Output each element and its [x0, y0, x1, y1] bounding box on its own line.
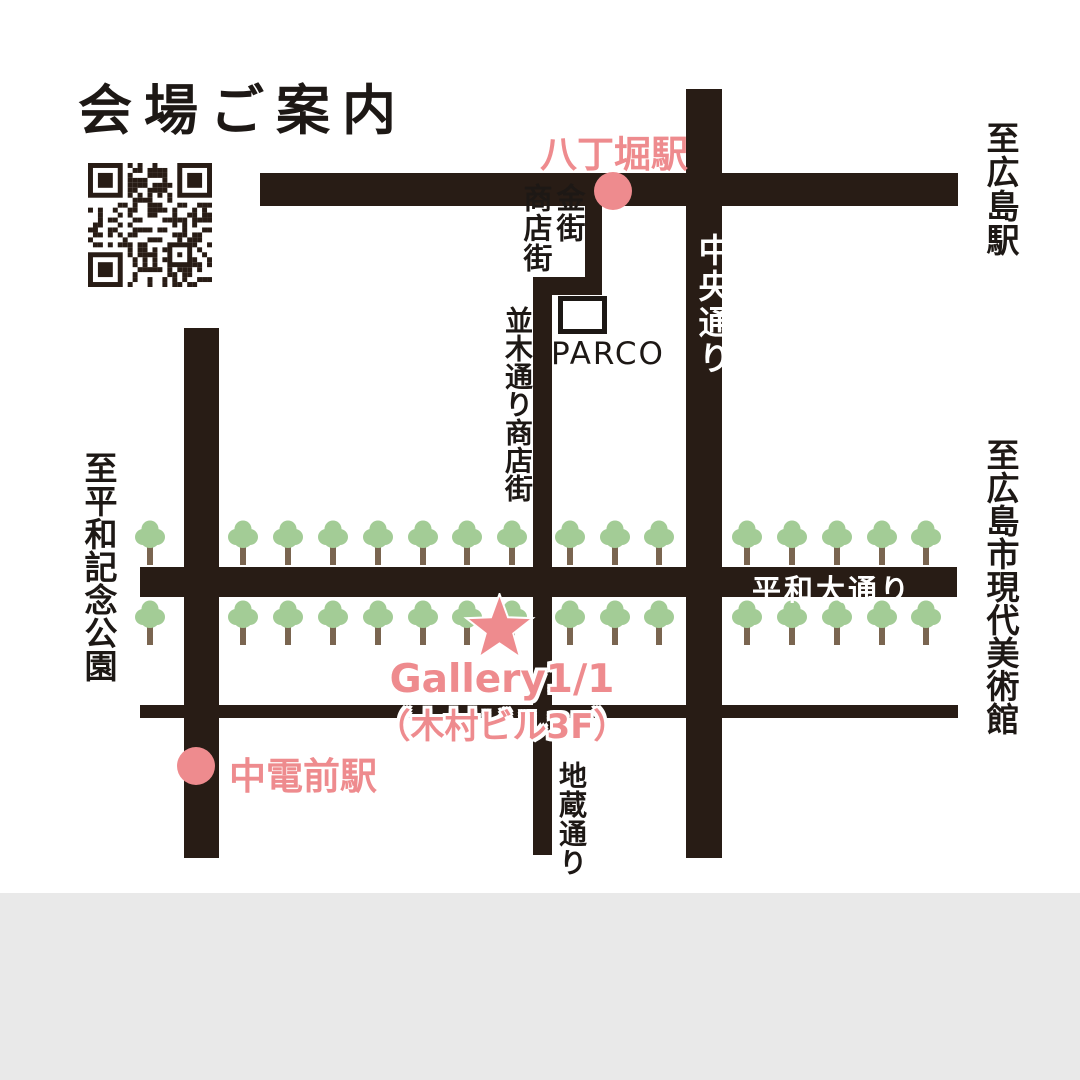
qr-code	[88, 163, 212, 287]
tree-icon	[317, 598, 349, 646]
tree-icon	[451, 518, 483, 566]
venue-name-label: Gallery1/1	[352, 657, 652, 702]
tree-icon	[272, 518, 304, 566]
venue-star-icon	[462, 593, 537, 665]
kanamachi-street-label-line1: 金街	[552, 183, 586, 243]
tree-icon	[599, 598, 631, 646]
chudenmae-station-marker	[177, 747, 215, 785]
footer-info-band: Gallery 1/1 [ギャラリーイチブンノイチ] 広島県広島市中区小町1-1…	[0, 893, 1080, 1080]
tree-icon	[227, 518, 259, 566]
kanamachi-street-label-line2: 商店街	[519, 183, 553, 273]
chudenmae-station-label: 中電前駅	[229, 746, 377, 800]
road-chuo-dori	[686, 89, 722, 858]
tree-icon	[599, 518, 631, 566]
hatchobori-station-label: 八丁堀駅	[540, 124, 688, 178]
to-hiroshima-station-label: 至広島駅	[976, 121, 1024, 421]
tree-icon	[731, 518, 763, 566]
parco-label: PARCO	[551, 336, 665, 372]
tree-icon	[407, 518, 439, 566]
to-peace-park-label: 至平和記念公園	[74, 451, 122, 711]
tree-icon	[362, 518, 394, 566]
tree-icon	[227, 598, 259, 646]
tree-icon	[643, 518, 675, 566]
tree-icon	[643, 598, 675, 646]
page-title: 会場ご案内	[78, 66, 408, 145]
namiki-street-label: 並木通り商店街	[497, 306, 537, 526]
tree-icon	[362, 598, 394, 646]
tree-icon	[866, 518, 898, 566]
tree-icon	[272, 598, 304, 646]
tree-icon	[910, 598, 942, 646]
tree-icon	[407, 598, 439, 646]
tree-icon	[776, 518, 808, 566]
venue-floor-label: （木村ビル3F）	[352, 699, 652, 748]
kanamachi-street-label: 金街商店街	[519, 183, 585, 273]
parco-building-icon	[558, 296, 607, 334]
tree-icon	[134, 518, 166, 566]
tree-icon	[821, 518, 853, 566]
tree-icon	[554, 598, 586, 646]
to-moca-label: 至広島市現代美術館	[976, 438, 1024, 738]
tree-icon	[134, 598, 166, 646]
chuo-dori-label: 中央通り	[688, 233, 736, 377]
jizo-dori-label: 地蔵通り	[551, 761, 591, 877]
heiwa-odori-label: 平和大通り	[752, 567, 912, 609]
venue-guide-flyer: 会場ご案内 八丁堀駅 金街商店街 中央通り 至広島駅 PARCO 並木通り商店街…	[0, 0, 1080, 1080]
tree-icon	[554, 518, 586, 566]
hatchobori-station-marker	[594, 172, 632, 210]
tree-icon	[317, 518, 349, 566]
tree-icon	[910, 518, 942, 566]
